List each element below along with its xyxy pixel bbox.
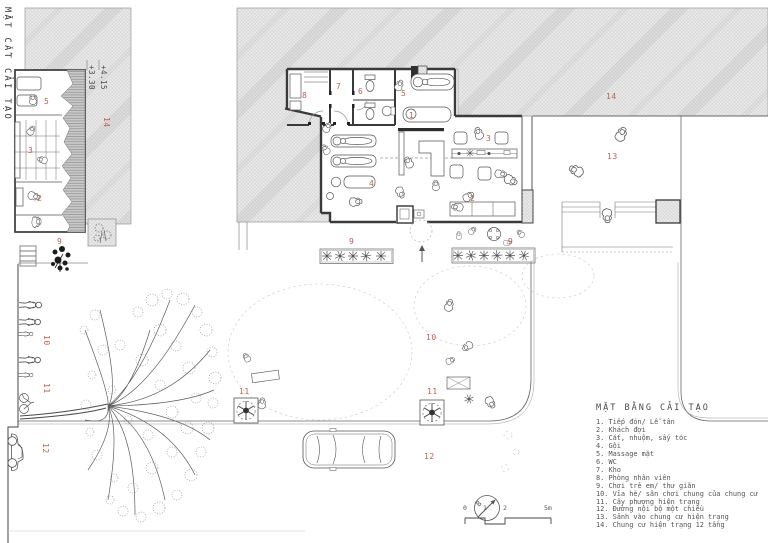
scale-tick-0: 0 [463,504,467,512]
sidewalk-plant [463,393,475,405]
legend-item: 5. Massage mặt [596,451,766,459]
section-label-2: 2 [37,194,42,203]
room-label-5: 5 [401,89,406,98]
section-label-14: 14 [102,117,111,128]
area-label-12: 12 [424,452,435,461]
scale-bar [465,518,551,524]
area-label-10: 10 [426,333,437,342]
play-area [410,220,501,242]
car-plan [303,429,395,471]
sidewalk-canopy-outlines [228,254,594,472]
area-label-9-left: 9 [349,237,354,246]
room-label-4: 4 [369,179,374,188]
sidewalk-people [242,298,497,410]
section-bicycle [20,394,35,414]
section-cut-room [15,70,85,232]
section-label-3: 3 [28,146,33,155]
room-label-6: 6 [358,87,363,96]
room-label-8: 8 [302,91,307,100]
section-label-11: 11 [42,383,51,394]
legend: MẶT BẰNG CẢI TẠO 1. Tiếp đón/ Lễ tân 2. … [596,403,766,530]
elevation-lower: +3.30 [87,65,96,90]
section-people [19,301,42,377]
section-title: MẶT CẮT CẢI TẠO [2,7,12,121]
elevation-upper: +4.15 [99,65,108,90]
scale-tick-5m: 5m [544,504,552,512]
legend-item: 3. Cắt, nhuộm, sấy tóc [596,435,766,443]
floor-plan-drawing: MẶT CẮT CẢI TẠO +4.15 +3.30 14 5 3 2 9 1… [0,0,768,543]
play-children [456,226,526,246]
tree-planter-right [420,400,444,425]
section-label-10: 10 [42,335,51,346]
room-label-1: 1 [409,111,414,120]
section-label-9: 9 [57,237,62,246]
room-label-7: 7 [336,82,341,91]
section-label-5: 5 [44,97,49,106]
lobby-people [568,126,630,223]
legend-item: 14. Chung cư hiện trạng 12 tầng [596,522,766,530]
scale-tick-2: 2 [503,504,507,512]
lobby-column [656,200,680,223]
counter-plant [466,149,474,157]
area-label-14: 14 [606,92,617,101]
area-label-9-right: 9 [508,237,513,246]
section-dark-tree [51,246,71,272]
entry-arrow [419,245,425,262]
salon-right-pier [522,190,533,223]
flame-tree [20,289,221,522]
legend-item: 6. WC [596,459,766,467]
room-label-2: 2 [470,194,475,203]
area-label-13: 13 [607,152,618,161]
area-label-11-right: 11 [427,387,438,396]
room-label-3: 3 [486,134,491,143]
tree-planter-left [234,398,258,423]
area-label-11-left: 11 [239,387,250,396]
section-car [8,434,23,471]
legend-title: MẶT BẰNG CẢI TẠO [596,403,766,413]
section-label-12: 12 [41,443,50,454]
